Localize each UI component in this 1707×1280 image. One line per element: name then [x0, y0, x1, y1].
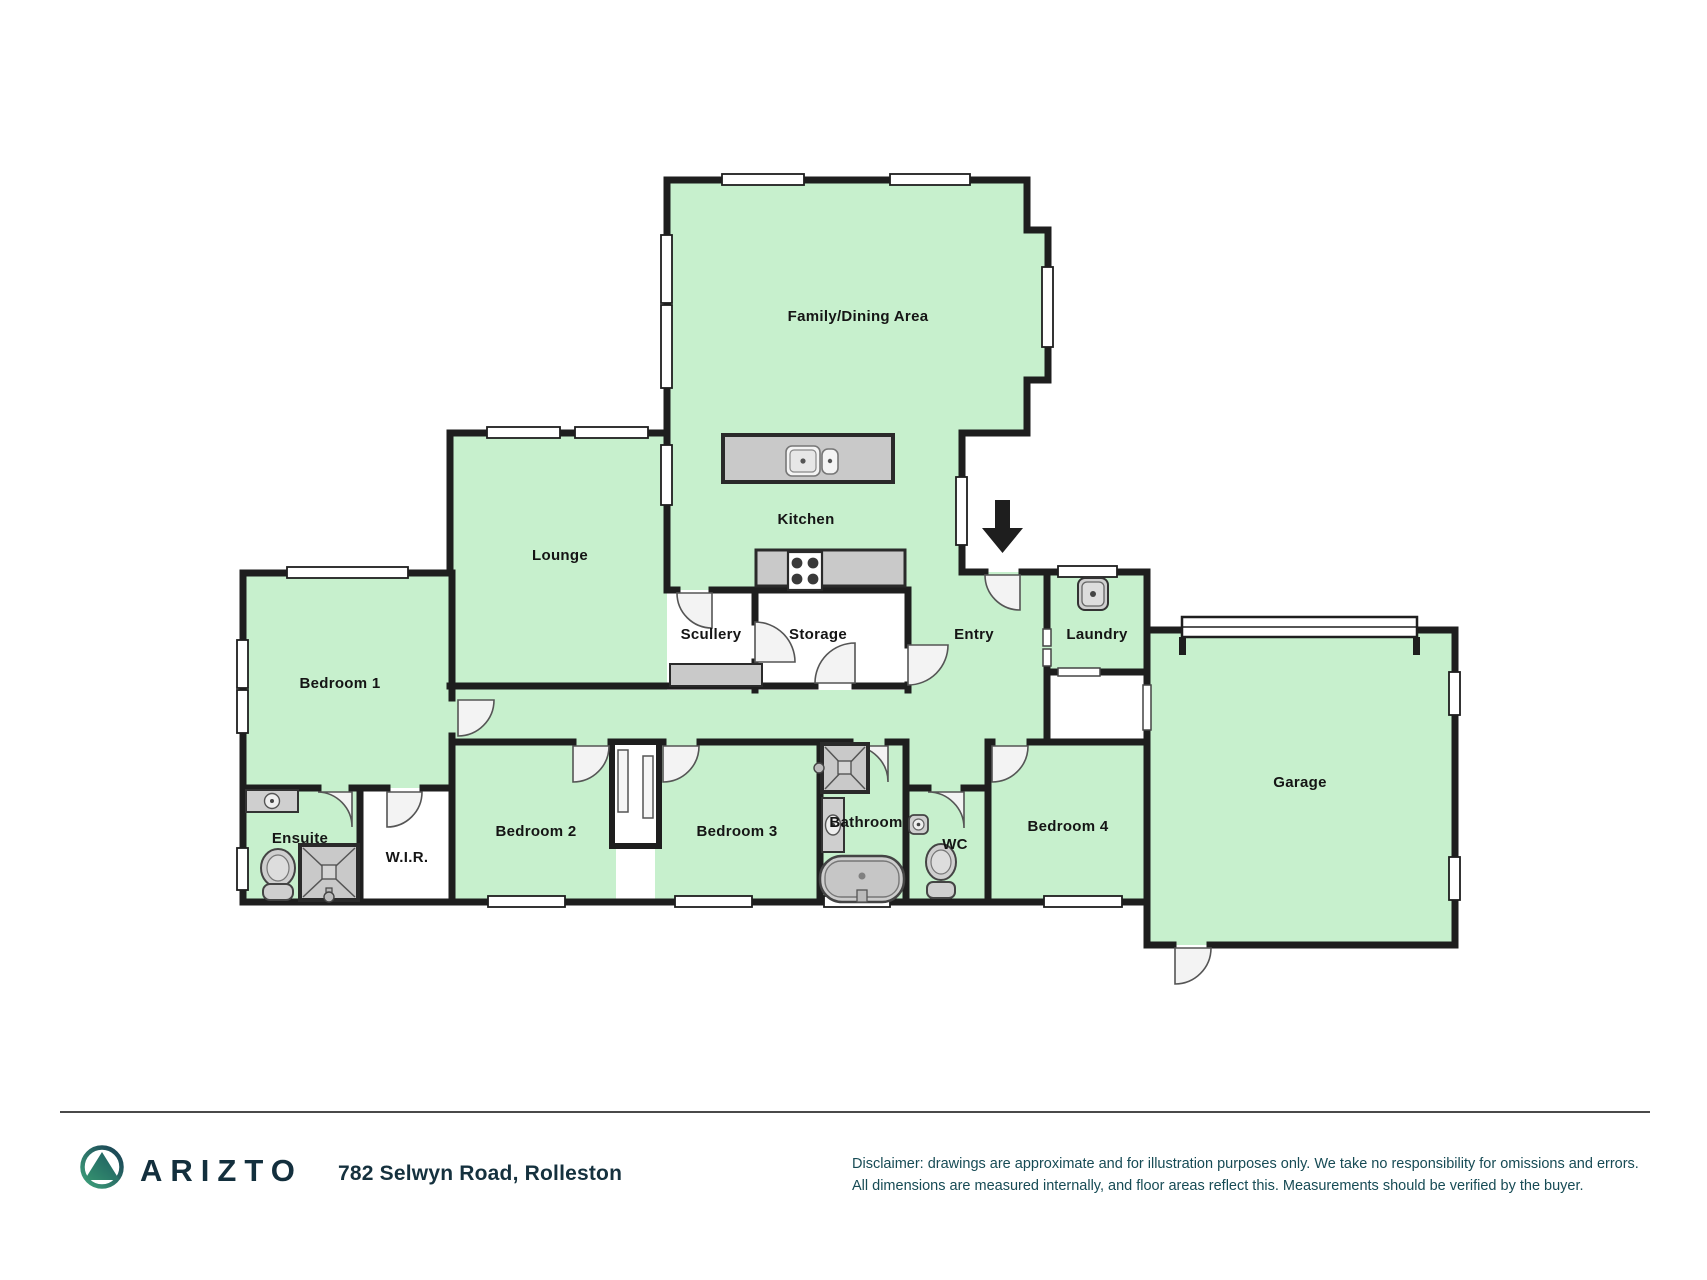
toilet-icon: [261, 849, 295, 900]
room-label-kitchen: Kitchen: [777, 511, 834, 528]
disclaimer-line-2: All dimensions are measured internally, …: [852, 1178, 1584, 1194]
footer: ARIZTO 782 Selwyn Road, Rolleston Discla…: [60, 1112, 1650, 1194]
room-label-bedroom4: Bedroom 4: [1027, 818, 1108, 835]
laundry-tub-icon: [1078, 578, 1108, 610]
bathtub-icon: [820, 856, 904, 902]
room-label-ensuite: Ensuite: [272, 830, 328, 847]
kitchen-island-sink-icon: [786, 446, 838, 476]
room-label-laundry: Laundry: [1066, 626, 1128, 643]
shower-icon: [814, 744, 868, 792]
room-garage-vestibule: [1047, 672, 1147, 742]
kitchen-island: [723, 435, 893, 482]
room-label-wir: W.I.R.: [386, 849, 429, 866]
vanity-sink-icon: [246, 790, 298, 812]
basin-icon: [909, 815, 928, 834]
arizto-logo-icon: [83, 1148, 122, 1187]
room-label-garage: Garage: [1273, 774, 1327, 791]
room-label-entry: Entry: [954, 626, 994, 643]
garage-exterior-door: [1175, 948, 1211, 984]
room-label-bathroom: Bathroom: [829, 814, 902, 831]
room-label-lounge: Lounge: [532, 547, 588, 564]
room-label-wc: WC: [942, 836, 968, 853]
room-label-storage: Storage: [789, 626, 847, 643]
property-address: 782 Selwyn Road, Rolleston: [338, 1162, 622, 1185]
stove-icon: [788, 552, 822, 590]
room-label-scullery: Scullery: [681, 626, 742, 643]
floor-plan-canvas: Family/Dining Area Kitchen Lounge Sculle…: [0, 0, 1707, 1280]
brand-name: ARIZTO: [140, 1153, 303, 1188]
disclaimer-line-1: Disclaimer: drawings are approximate and…: [852, 1156, 1639, 1172]
floor-plan-page: Family/Dining Area Kitchen Lounge Sculle…: [0, 0, 1707, 1280]
room-label-bedroom2: Bedroom 2: [495, 823, 576, 840]
room-label-bedroom3: Bedroom 3: [696, 823, 777, 840]
room-label-family-dining: Family/Dining Area: [788, 308, 929, 325]
shower-icon: [300, 845, 358, 902]
room-label-bedroom1: Bedroom 1: [299, 675, 380, 692]
scullery-bench: [670, 664, 762, 686]
entry-arrow-icon: [982, 500, 1023, 553]
kitchen-bench: [756, 550, 905, 590]
